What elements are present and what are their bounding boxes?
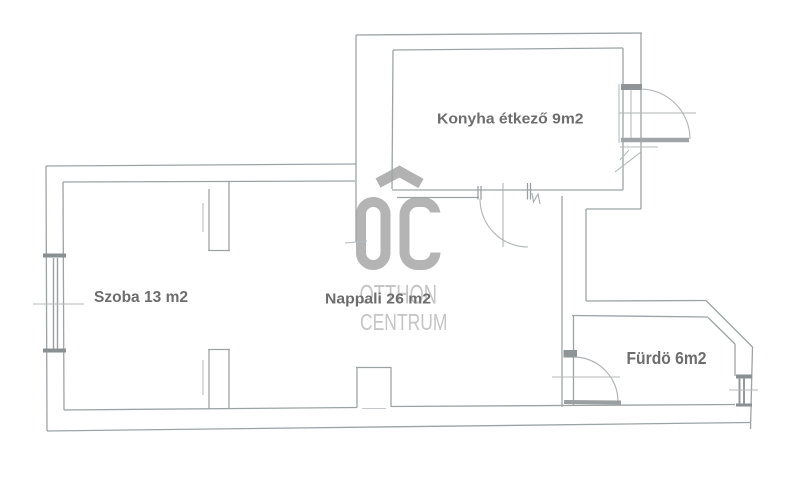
svg-text:CENTRUM: CENTRUM bbox=[360, 309, 448, 335]
svg-text:Fürdö 6m2: Fürdö 6m2 bbox=[627, 348, 707, 368]
svg-text:Szoba 13 m2: Szoba 13 m2 bbox=[94, 289, 188, 306]
svg-text:Konyha étkező 9m2: Konyha étkező 9m2 bbox=[437, 111, 584, 128]
svg-text:Nappali 26 m2: Nappali 26 m2 bbox=[325, 291, 431, 308]
